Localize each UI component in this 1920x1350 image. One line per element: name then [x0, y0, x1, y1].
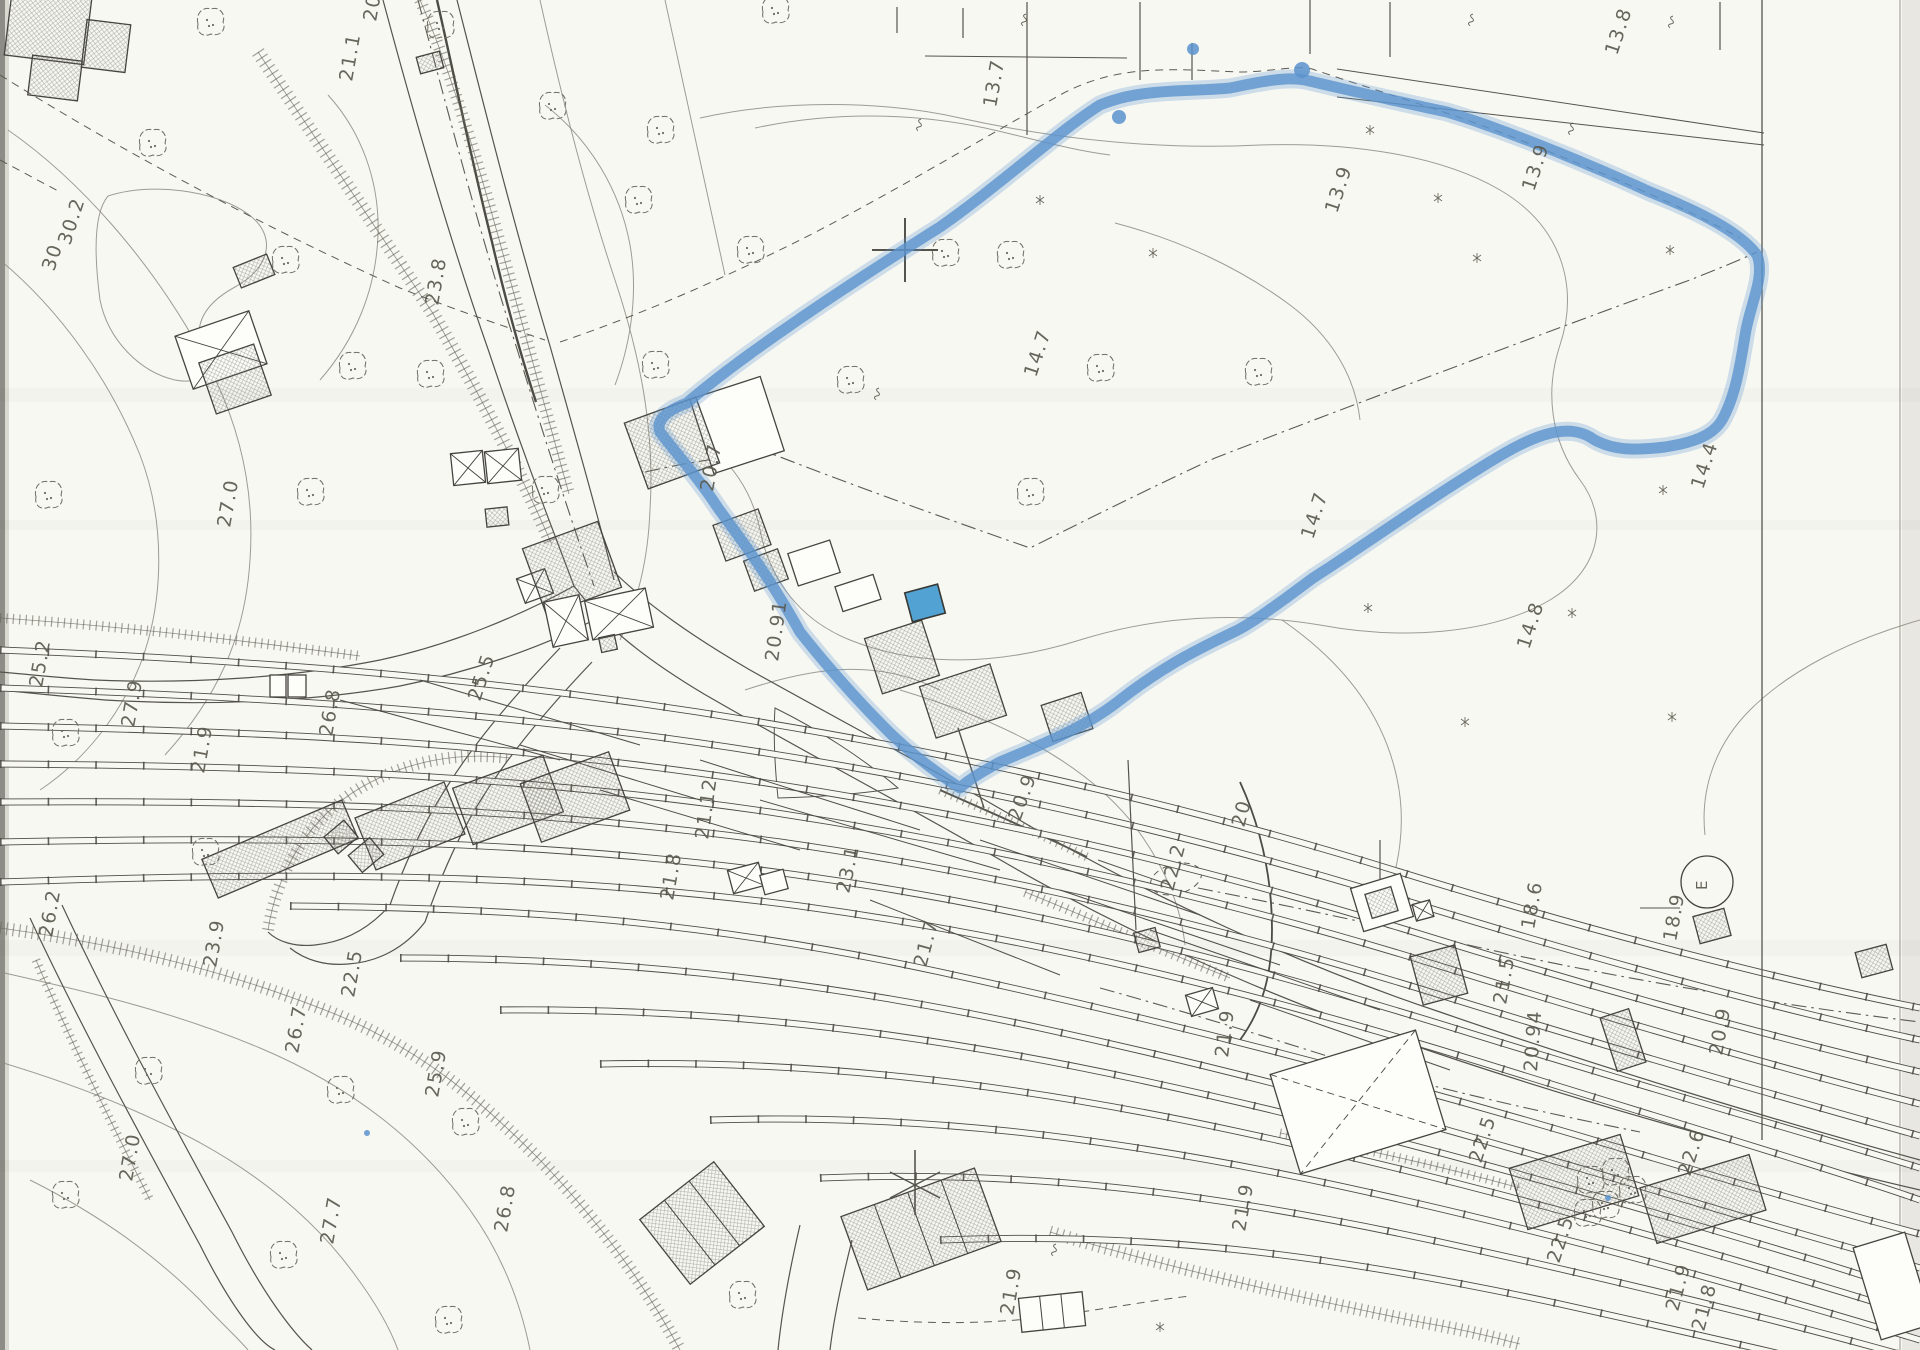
building: [484, 448, 521, 483]
scan-edge-left-soft: [5, 0, 9, 1350]
scan-band: [0, 1160, 1920, 1172]
blue-dot: [364, 1130, 370, 1136]
building: [288, 675, 306, 697]
blue-dot: [1605, 1195, 1611, 1201]
building: [599, 635, 618, 653]
scan-margin-line: [1899, 0, 1901, 1350]
building-outline: [28, 55, 83, 101]
blue-dot: [1112, 110, 1126, 124]
scan-band: [0, 388, 1920, 402]
building-outline: [1018, 1292, 1085, 1333]
scan-edge-left: [0, 0, 5, 1350]
building: [1412, 900, 1434, 921]
map-label: E: [1693, 879, 1711, 890]
building: [81, 19, 131, 72]
building-outline: [599, 635, 618, 653]
blue-dot: [1187, 43, 1199, 55]
building-outline: [270, 675, 286, 697]
building-outline: [81, 19, 131, 72]
building-outline: [288, 675, 306, 697]
scanned-map-page: 2021.123.83030.227.013.713.913.913.814.7…: [0, 0, 1920, 1350]
blue-dot: [1294, 62, 1310, 78]
building: [270, 675, 286, 697]
building-outline: [4, 0, 91, 65]
building: [485, 507, 509, 527]
map-label: 20.94: [1520, 1009, 1546, 1072]
building: [1018, 1292, 1085, 1333]
topographic-map-scan: 2021.123.83030.227.013.713.913.913.814.7…: [0, 0, 1920, 1350]
building: [4, 0, 91, 65]
building: [450, 450, 485, 485]
scan-band: [0, 520, 1920, 530]
building: [28, 55, 83, 101]
scan-margin-right: [1902, 0, 1920, 1350]
building-outline: [485, 507, 509, 527]
